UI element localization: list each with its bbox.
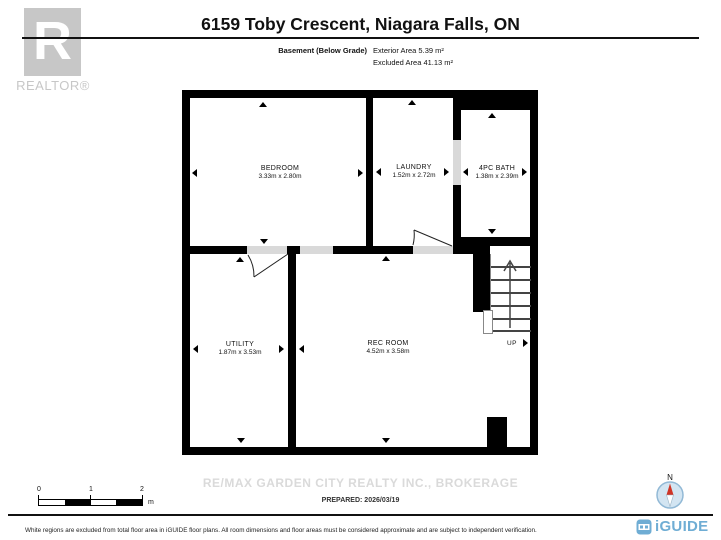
excluded-area-value: Excluded Area 41.13 m² [373,58,453,67]
compass-icon: N [649,469,693,513]
compass-north-label: N [667,473,673,482]
realtor-logo-text: REALTOR® [12,78,94,93]
header-divider [22,37,699,39]
disclaimer-text: White regions are excluded from total fl… [25,527,537,534]
footer-divider [8,514,713,516]
brokerage-watermark: RE/MAX GARDEN CITY REALTY INC., BROKERAG… [0,476,721,490]
exterior-area-value: Exterior Area 5.39 m² [373,46,444,55]
realtor-logo-icon: R [24,8,81,76]
iguide-brand-text: iGUIDE [655,518,708,535]
scale-segment [65,500,91,505]
iguide-logo-icon [636,519,652,535]
scale-segment [39,500,65,505]
iguide-logo: iGUIDE [636,518,708,535]
page-title: 6159 Toby Crescent, Niagara Falls, ON [0,14,721,35]
scale-bar [38,499,143,506]
scale-tick-label: 2 [136,486,148,493]
scale-segment [91,500,117,505]
scale-segment [116,500,142,505]
scale-tick-label: 1 [85,486,97,493]
scale-unit-label: m [148,499,154,506]
floorplan-page: R REALTOR® 6159 Toby Crescent, Niagara F… [0,0,721,540]
realtor-logo-letter: R [24,8,81,76]
door-swing-arcs [182,90,538,455]
stairs-up-arrow [504,261,516,328]
scale-tick-label: 0 [33,486,45,493]
